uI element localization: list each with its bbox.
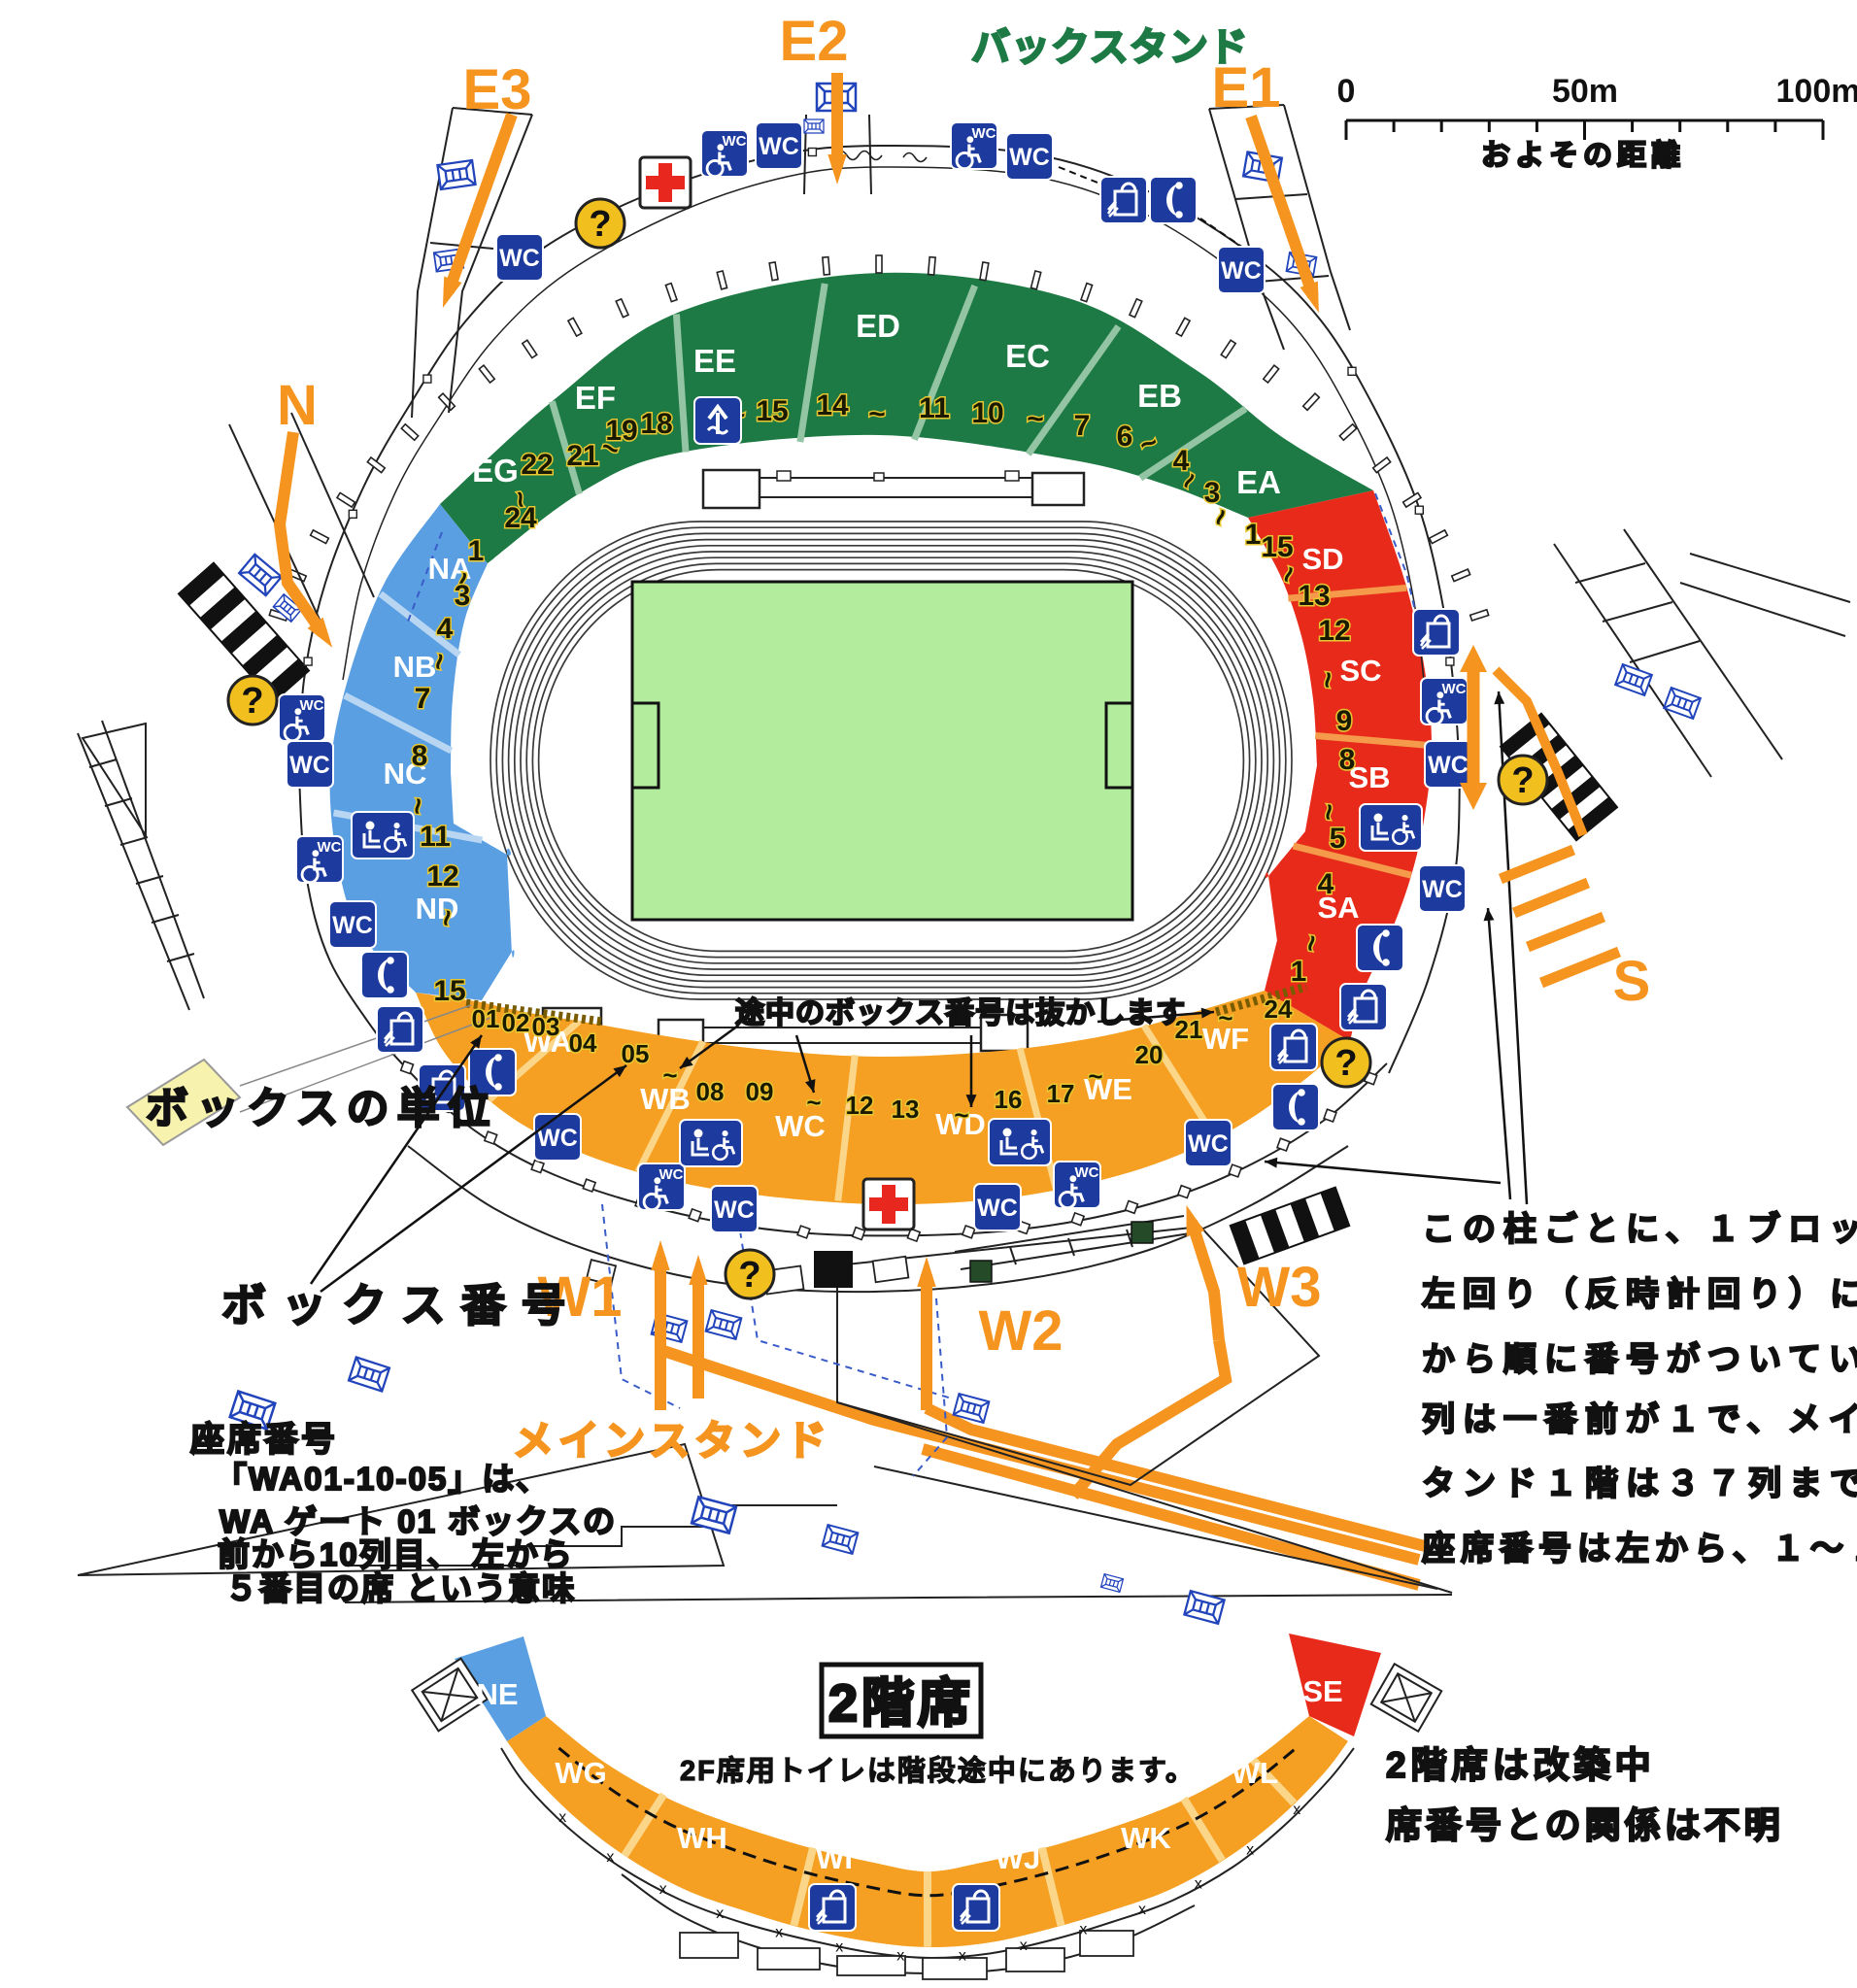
svg-text:05: 05: [622, 1039, 650, 1068]
svg-text:WC: WC: [289, 752, 330, 779]
svg-text:ボックスの単位: ボックスの単位: [146, 1085, 498, 1132]
svg-text:WC: WC: [714, 1196, 755, 1224]
svg-text:前から10列目、 左から: 前から10列目、 左から: [218, 1536, 574, 1572]
svg-text:8: 8: [1339, 744, 1356, 776]
svg-text:18: 18: [640, 408, 672, 440]
svg-text:WC: WC: [1422, 876, 1463, 903]
svg-text:15: 15: [1261, 531, 1293, 563]
svg-text:WJ: WJ: [996, 1841, 1041, 1875]
svg-text:WC: WC: [499, 245, 540, 272]
svg-text:09: 09: [746, 1077, 774, 1106]
svg-text:12: 12: [1318, 615, 1350, 647]
svg-text:0: 0: [1337, 73, 1356, 110]
svg-text:SC: SC: [1339, 654, 1381, 688]
svg-text:WC: WC: [318, 839, 342, 856]
svg-text:~: ~: [1218, 1003, 1232, 1032]
svg-text:x: x: [1079, 1921, 1087, 1937]
svg-text:50m: 50m: [1552, 73, 1618, 110]
svg-text:2階席は改築中: 2階席は改築中: [1386, 1745, 1656, 1785]
svg-text:10: 10: [971, 397, 1003, 429]
svg-text:15: 15: [433, 975, 465, 1007]
svg-text:この柱ごとに、１ブロック。: この柱ごとに、１ブロック。: [1422, 1210, 1857, 1248]
svg-text:21: 21: [566, 440, 598, 472]
svg-text:NE: NE: [476, 1677, 518, 1711]
svg-text:S: S: [1613, 950, 1651, 1013]
svg-text:WC: WC: [332, 912, 373, 939]
svg-text:x: x: [835, 1938, 843, 1955]
svg-text:およその距離: およその距離: [1481, 139, 1685, 172]
svg-text:EF: EF: [575, 380, 616, 416]
svg-text:12: 12: [426, 860, 458, 893]
svg-text:席番号との関係は不明: 席番号との関係は不明: [1386, 1805, 1784, 1845]
svg-text:WC: WC: [659, 1166, 684, 1183]
svg-text:タンド１階は３７列まで。: タンド１階は３７列まで。: [1422, 1466, 1857, 1502]
svg-text:SD: SD: [1301, 542, 1343, 576]
svg-text:WC: WC: [1075, 1164, 1099, 1181]
svg-text:x: x: [1138, 1902, 1146, 1918]
svg-text:9: 9: [1336, 705, 1353, 737]
svg-text:x: x: [896, 1947, 904, 1964]
svg-text:W2: W2: [979, 1299, 1064, 1363]
svg-text:~: ~: [1027, 403, 1044, 435]
svg-text:WC: WC: [972, 125, 996, 142]
svg-text:x: x: [1020, 1937, 1028, 1954]
svg-text:?: ?: [738, 1255, 760, 1296]
svg-text:WC: WC: [1009, 144, 1050, 171]
svg-text:WA ゲート 01 ボックスの: WA ゲート 01 ボックスの: [219, 1503, 617, 1539]
svg-text:~: ~: [662, 1061, 677, 1090]
svg-text:02: 02: [502, 1008, 530, 1037]
svg-text:~: ~: [868, 398, 886, 430]
svg-text:WC: WC: [723, 133, 747, 150]
svg-text:5: 5: [1330, 823, 1346, 855]
svg-text:WC: WC: [300, 697, 324, 714]
svg-text:W3: W3: [1237, 1256, 1322, 1319]
svg-text:01: 01: [472, 1004, 500, 1033]
svg-text:7: 7: [415, 683, 431, 715]
svg-text:3: 3: [455, 580, 471, 612]
svg-text:５番目の席 という意味: ５番目の席 という意味: [225, 1570, 576, 1606]
svg-text:17: 17: [1047, 1079, 1075, 1108]
svg-text:?: ?: [1334, 1043, 1357, 1084]
svg-text:~: ~: [1312, 802, 1345, 822]
svg-text:14: 14: [816, 389, 849, 421]
svg-text:WL: WL: [1232, 1756, 1278, 1790]
svg-text:8: 8: [412, 740, 428, 772]
svg-text:15: 15: [756, 395, 788, 427]
svg-text:WK: WK: [1121, 1821, 1171, 1855]
svg-text:x: x: [1195, 1875, 1202, 1892]
svg-text:22: 22: [521, 449, 553, 481]
svg-text:x: x: [1293, 1802, 1300, 1818]
svg-text:EB: EB: [1137, 378, 1182, 414]
svg-text:E2: E2: [780, 10, 849, 73]
svg-text:x: x: [1246, 1842, 1254, 1859]
svg-text:EC: EC: [1005, 338, 1050, 374]
svg-text:24: 24: [1265, 994, 1293, 1024]
svg-text:E3: E3: [463, 58, 532, 121]
svg-text:メインスタンド: メインスタンド: [513, 1418, 831, 1464]
svg-text:EA: EA: [1236, 464, 1281, 500]
svg-text:「WA01-10-05」は、: 「WA01-10-05」は、: [215, 1461, 550, 1497]
svg-text:座席番号: 座席番号: [190, 1421, 338, 1459]
svg-text:EG: EG: [472, 453, 519, 489]
svg-text:?: ?: [241, 681, 263, 722]
svg-text:から順に番号がついている。: から順に番号がついている。: [1422, 1341, 1857, 1378]
svg-text:12: 12: [846, 1091, 874, 1120]
svg-text:1: 1: [468, 535, 485, 567]
svg-text:WG: WG: [555, 1756, 606, 1790]
svg-text:WC: WC: [1221, 257, 1262, 285]
svg-text:WC: WC: [1428, 752, 1469, 779]
svg-text:3: 3: [1204, 477, 1221, 509]
svg-text:座席番号は左から、１～１０。: 座席番号は左から、１～１０。: [1422, 1531, 1857, 1567]
svg-text:WC: WC: [759, 133, 799, 160]
svg-text:19: 19: [605, 415, 637, 447]
svg-text:WC: WC: [1442, 681, 1467, 697]
svg-text:04: 04: [569, 1028, 597, 1058]
svg-text:13: 13: [1298, 580, 1330, 612]
svg-text:EE: EE: [693, 343, 736, 379]
svg-text:左回り（反時計回り）に１番: 左回り（反時計回り）に１番: [1422, 1275, 1857, 1313]
svg-text:WC: WC: [1188, 1130, 1229, 1158]
svg-text:ボックス番号: ボックス番号: [221, 1280, 582, 1331]
svg-text:WI: WI: [816, 1841, 853, 1875]
svg-text:途中のボックス番号は抜かします: 途中のボックス番号は抜かします: [735, 996, 1186, 1029]
svg-text:11: 11: [919, 392, 950, 424]
svg-text:x: x: [716, 1905, 724, 1922]
svg-text:WC: WC: [977, 1195, 1018, 1222]
svg-text:7: 7: [1074, 410, 1091, 442]
svg-text:x: x: [659, 1881, 667, 1898]
svg-text:08: 08: [696, 1077, 725, 1106]
svg-text:WC: WC: [537, 1125, 578, 1152]
svg-text:N: N: [277, 374, 318, 437]
svg-text:6: 6: [1117, 421, 1133, 453]
svg-text:13: 13: [892, 1095, 920, 1124]
svg-text:4: 4: [437, 613, 454, 645]
svg-text:03: 03: [532, 1012, 560, 1041]
svg-text:16: 16: [995, 1085, 1023, 1114]
svg-text:~: ~: [1311, 670, 1344, 690]
svg-text:4: 4: [1318, 868, 1334, 900]
svg-text:?: ?: [1511, 760, 1534, 801]
svg-text:100m: 100m: [1776, 73, 1857, 110]
svg-text:x: x: [558, 1809, 566, 1826]
svg-text:x: x: [606, 1849, 614, 1866]
svg-text:1: 1: [1291, 956, 1307, 988]
svg-text:列は一番前が１で、メインス: 列は一番前が１で、メインス: [1422, 1401, 1857, 1438]
svg-text:x: x: [959, 1947, 966, 1964]
svg-text:SE: SE: [1302, 1674, 1342, 1708]
svg-text:20: 20: [1135, 1040, 1164, 1069]
svg-text:ED: ED: [856, 308, 900, 344]
svg-text:2F席用トイレは階段途中にあります。: 2F席用トイレは階段途中にあります。: [680, 1754, 1196, 1787]
svg-text:x: x: [775, 1925, 783, 1941]
svg-text:バックスタンド: バックスタンド: [971, 26, 1249, 69]
svg-text:1: 1: [1245, 519, 1262, 551]
svg-text:WH: WH: [677, 1821, 727, 1855]
svg-text:2階席: 2階席: [828, 1674, 974, 1733]
svg-text:~: ~: [954, 1100, 968, 1129]
svg-text:?: ?: [589, 204, 611, 245]
svg-text:~: ~: [1088, 1061, 1102, 1091]
svg-text:11: 11: [420, 821, 451, 853]
